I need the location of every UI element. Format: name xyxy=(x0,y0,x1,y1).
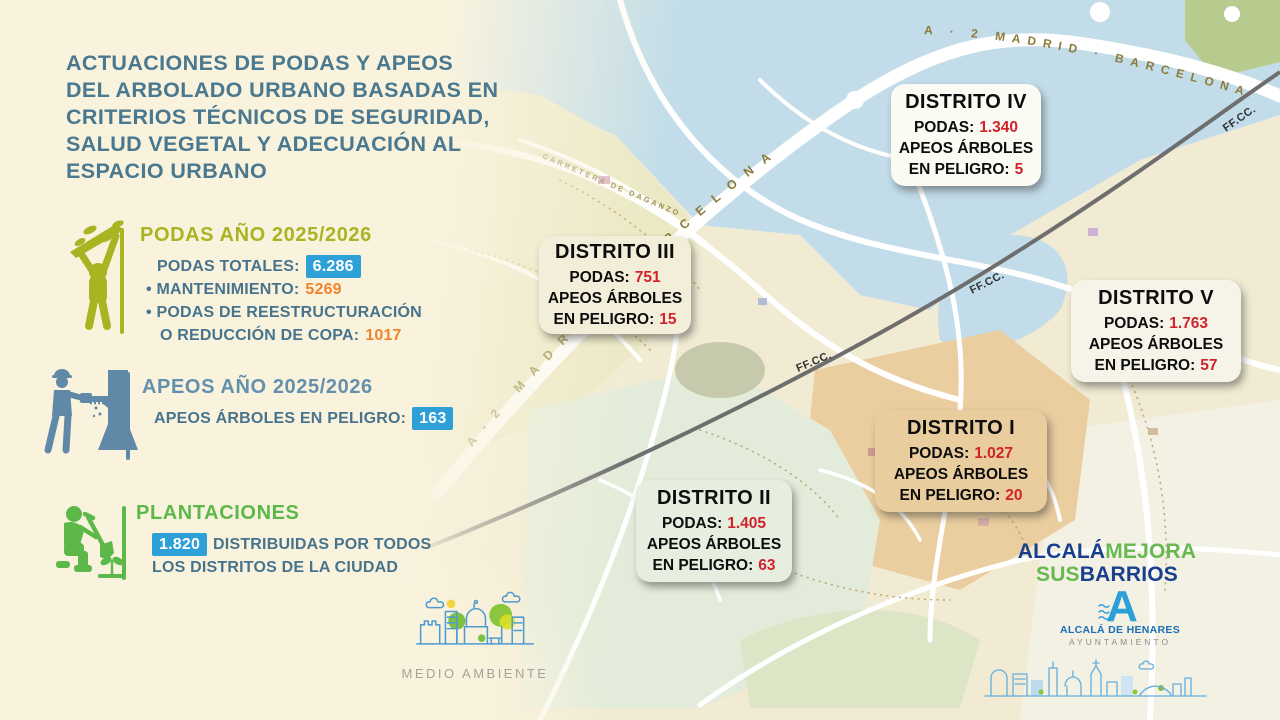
medio-ambiente-logo xyxy=(413,582,537,660)
mejora-mejora: MEJORA xyxy=(1105,540,1196,563)
apeos-section: APEOS AÑO 2025/2026 APEOS ÁRBOLES EN PEL… xyxy=(142,376,453,430)
city-skyline-illustration xyxy=(983,648,1209,704)
district-podas-value: 1.340 xyxy=(979,119,1018,136)
section-divider xyxy=(126,372,130,460)
title-line: SALUD VEGETAL Y ADECUACIÓN AL xyxy=(66,131,498,158)
ayuntamiento-logo-a: A xyxy=(1098,580,1142,626)
district-podas-value: 1.027 xyxy=(974,445,1013,462)
title-line: CRITERIOS TÉCNICOS DE SEGURIDAD, xyxy=(66,104,498,131)
district-name: DISTRITO II xyxy=(657,487,771,510)
district-name: DISTRITO I xyxy=(907,417,1015,440)
district-card-distrito-i: DISTRITO I PODAS:1.027 APEOS ÁRBOLES EN … xyxy=(875,410,1047,512)
district-podas-label: PODAS: xyxy=(662,515,722,532)
podas-total-label: PODAS TOTALES: xyxy=(157,258,300,275)
district-apeos-label: EN PELIGRO: xyxy=(909,161,1010,178)
svg-text:A: A xyxy=(1106,582,1138,626)
plantaciones-text-line2: LOS DISTRITOS DE LA CIUDAD xyxy=(152,559,398,576)
pruning-worker-icon xyxy=(68,220,128,332)
district-card-distrito-iii: DISTRITO III PODAS:751 APEOS ÁRBOLES EN … xyxy=(539,236,691,334)
district-podas-value: 1.405 xyxy=(727,515,766,532)
podas-bullet2-line1: • PODAS DE REESTRUCTURACIÓN xyxy=(146,304,422,321)
podas-total-badge: 6.286 xyxy=(306,255,361,278)
district-card-distrito-iv: DISTRITO IV PODAS:1.340 APEOS ÁRBOLES EN… xyxy=(891,84,1041,186)
podas-section: PODAS AÑO 2025/2026 PODAS TOTALES:6.286 … xyxy=(140,224,422,347)
district-apeos-line: APEOS ÁRBOLES xyxy=(647,534,781,555)
infographic-root: A-2 MADRID · BARCELONA A · 2 MADRID · BA… xyxy=(0,0,1280,720)
apeos-badge: 163 xyxy=(412,407,453,430)
plantaciones-section: PLANTACIONES 1.820DISTRIBUIDAS POR TODOS… xyxy=(136,502,431,579)
plantaciones-badge: 1.820 xyxy=(152,533,207,556)
district-apeos-label: EN PELIGRO: xyxy=(652,557,753,574)
apeos-heading: APEOS AÑO 2025/2026 xyxy=(142,376,453,399)
mejora-sus: SUS xyxy=(1036,563,1080,586)
district-card-distrito-v: DISTRITO V PODAS:1.763 APEOS ÁRBOLES EN … xyxy=(1071,280,1241,382)
planting-worker-icon xyxy=(52,503,130,580)
district-apeos-value: 57 xyxy=(1200,357,1217,374)
district-apeos-value: 15 xyxy=(659,311,676,328)
district-podas-label: PODAS: xyxy=(914,119,974,136)
district-name: DISTRITO IV xyxy=(905,91,1027,114)
district-apeos-label: EN PELIGRO: xyxy=(553,311,654,328)
district-podas-value: 751 xyxy=(635,269,661,286)
apeos-label: APEOS ÁRBOLES EN PELIGRO: xyxy=(154,410,406,427)
section-divider xyxy=(122,506,126,580)
plantaciones-text-line1: DISTRIBUIDAS POR TODOS xyxy=(213,536,431,553)
district-apeos-label: EN PELIGRO: xyxy=(1094,357,1195,374)
district-apeos-line: APEOS ÁRBOLES xyxy=(1089,334,1223,355)
district-card-distrito-ii: DISTRITO II PODAS:1.405 APEOS ÁRBOLES EN… xyxy=(636,480,792,582)
district-podas-label: PODAS: xyxy=(569,269,629,286)
district-name: DISTRITO III xyxy=(555,241,675,264)
felling-worker-icon xyxy=(40,366,140,458)
ayuntamiento-subtitle: AYUNTAMIENTO xyxy=(1050,637,1190,647)
page-title: ACTUACIONES DE PODAS Y APEOS DEL ARBOLAD… xyxy=(66,50,498,185)
district-apeos-value: 5 xyxy=(1015,161,1024,178)
district-apeos-label: EN PELIGRO: xyxy=(899,487,1000,504)
district-apeos-value: 63 xyxy=(758,557,775,574)
title-line: DEL ARBOLADO URBANO BASADAS EN xyxy=(66,77,498,104)
plantaciones-heading: PLANTACIONES xyxy=(136,502,431,525)
title-line: ACTUACIONES DE PODAS Y APEOS xyxy=(66,50,498,77)
podas-bullet1-label: • MANTENIMIENTO: xyxy=(146,281,299,298)
podas-bullet1-value: 5269 xyxy=(305,281,341,298)
district-podas-label: PODAS: xyxy=(1104,315,1164,332)
district-apeos-line: APEOS ÁRBOLES xyxy=(899,138,1033,159)
medio-ambiente-label: MEDIO AMBIENTE xyxy=(382,666,568,681)
ayuntamiento-name: ALCALÁ DE HENARES xyxy=(1050,624,1190,636)
title-line: ESPACIO URBANO xyxy=(66,158,498,185)
district-podas-value: 1.763 xyxy=(1169,315,1208,332)
podas-bullet2-line2: O REDUCCIÓN DE COPA: xyxy=(160,327,359,344)
district-podas-label: PODAS: xyxy=(909,445,969,462)
section-divider xyxy=(120,228,124,334)
district-apeos-line: APEOS ÁRBOLES xyxy=(548,288,682,309)
podas-bullet2-value: 1017 xyxy=(365,327,401,344)
district-apeos-line: APEOS ÁRBOLES xyxy=(894,464,1028,485)
mejora-alcala: ALCALÁ xyxy=(1018,540,1106,563)
podas-heading: PODAS AÑO 2025/2026 xyxy=(140,224,422,247)
district-apeos-value: 20 xyxy=(1005,487,1022,504)
district-name: DISTRITO V xyxy=(1098,287,1214,310)
